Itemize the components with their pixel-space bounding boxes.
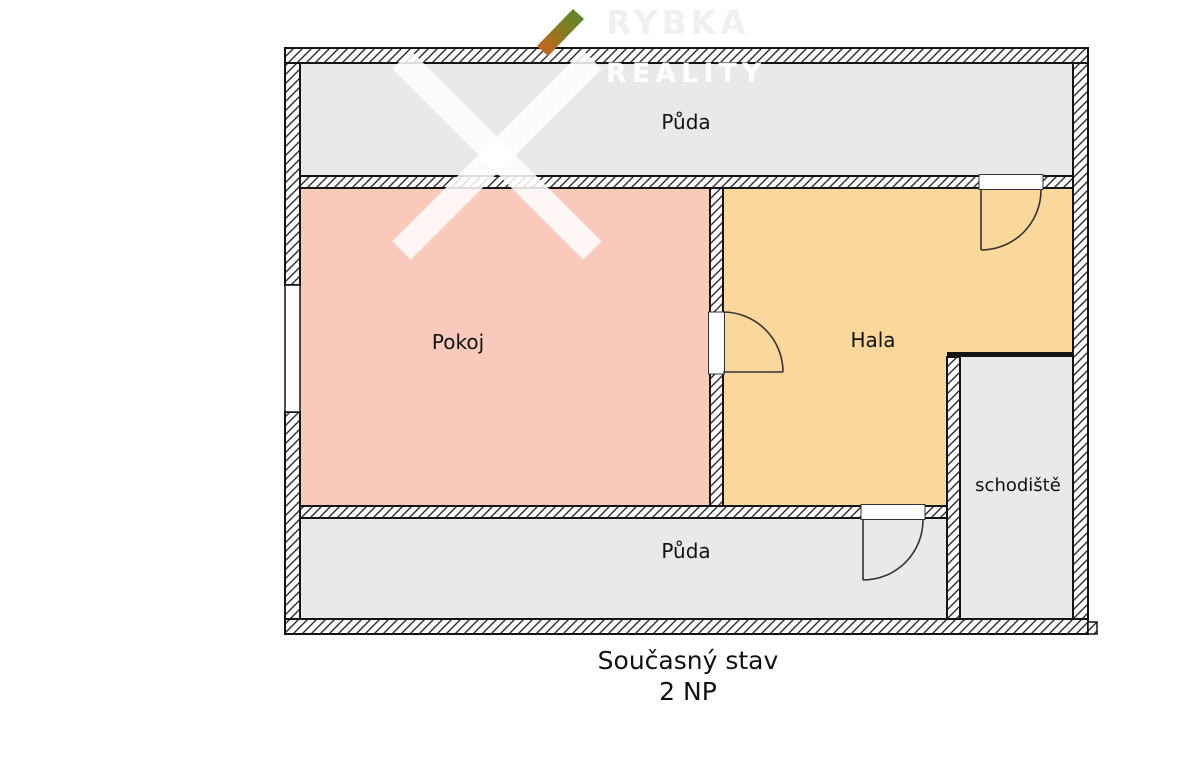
room-puda-bottom-fill <box>300 518 947 619</box>
wall-left-lower <box>285 412 300 619</box>
label-hala: Hala <box>850 328 895 352</box>
wall-right <box>1073 63 1088 619</box>
floorplan-canvas: Půda Pokoj Hala schodiště Půda RYBKA REA… <box>0 0 1200 760</box>
door-opening-hala-top <box>979 175 1043 190</box>
label-pokoj: Pokoj <box>432 330 484 354</box>
door-opening-pokoj-hala <box>709 312 725 374</box>
label-puda-top: Půda <box>661 110 710 134</box>
window-left-wall <box>285 285 300 412</box>
label-schodiste: schodiště <box>975 475 1061 496</box>
room-pokoj-fill <box>300 188 710 506</box>
watermark-brand-line2: REALITY <box>606 58 766 89</box>
watermark-brand-line1: RYBKA <box>606 3 750 42</box>
schodiste-top-edge <box>947 352 1073 357</box>
wall-schodiste-left <box>947 357 960 619</box>
label-puda-bottom: Půda <box>661 539 710 563</box>
caption-line2: 2 NP <box>659 677 717 706</box>
caption: Současný stav 2 NP <box>598 646 779 706</box>
wall-left-upper <box>285 63 300 285</box>
caption-line1: Současný stav <box>598 646 779 675</box>
wall-bottom-right-notch <box>1088 622 1097 634</box>
door-opening-hala-puda <box>861 505 925 520</box>
floorplan-svg: Půda Pokoj Hala schodiště Půda RYBKA REA… <box>0 0 1200 760</box>
wall-puda-top-divider <box>300 176 1073 188</box>
wall-bottom <box>285 619 1088 634</box>
